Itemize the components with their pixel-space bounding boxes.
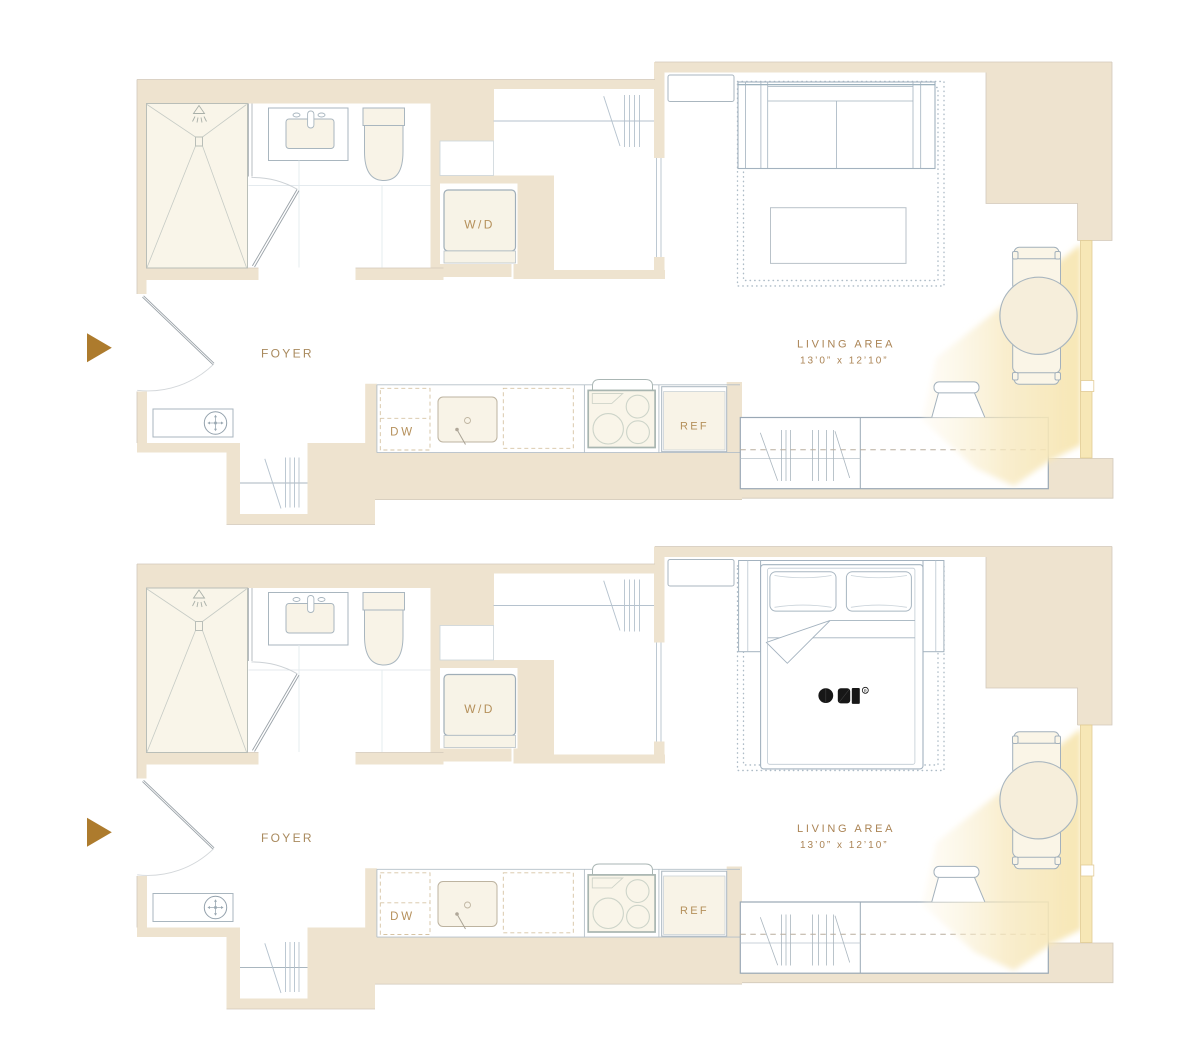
svg-text:R: R [864,688,867,693]
